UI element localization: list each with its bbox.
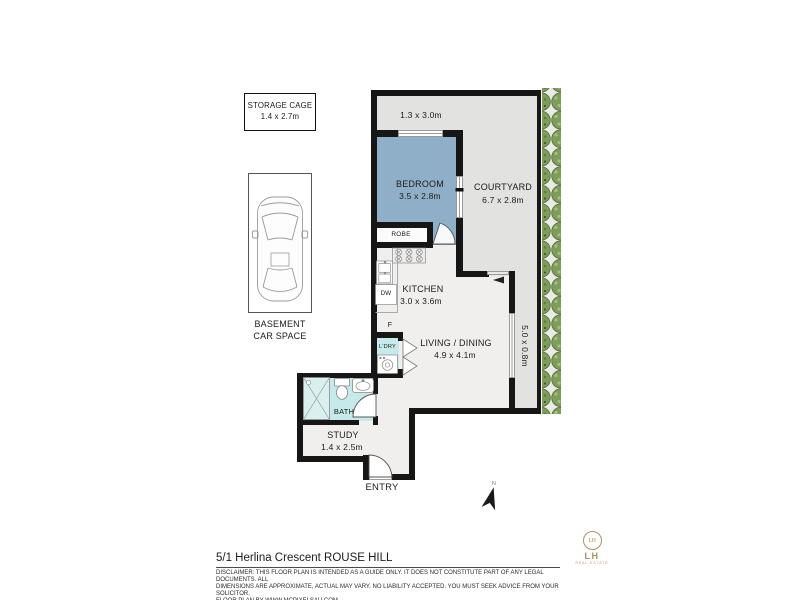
address-rule xyxy=(216,567,560,568)
logo-circle: LH xyxy=(583,531,602,550)
disclaimer-line1: DISCLAIMER: THIS FLOOR PLAN IS INTENDED … xyxy=(216,570,584,584)
storage-cage-label: STORAGE CAGE xyxy=(248,101,313,110)
window-latch-tick xyxy=(456,188,464,192)
north-arrow-icon xyxy=(482,486,501,511)
disclaimer-text: DISCLAIMER: THIS FLOOR PLAN IS INTENDED … xyxy=(216,570,584,600)
bedroom-label: BEDROOM xyxy=(396,179,444,189)
car-space-label-line1: BASEMENT xyxy=(254,319,305,329)
sliding-door-arrow-icon xyxy=(493,277,504,284)
fridge-label: F xyxy=(388,322,392,329)
logo-name: LH xyxy=(574,551,610,561)
sink-icon xyxy=(377,261,393,284)
entry-label: ENTRY xyxy=(365,482,398,493)
agency-logo: LH LH REAL ESTATE xyxy=(574,531,610,565)
storage-cage-dims: 1.4 x 2.7m xyxy=(261,112,299,121)
laundry-bifold-doors xyxy=(403,339,417,375)
study-dims: 1.4 x 2.5m xyxy=(321,442,363,452)
basin-icon xyxy=(353,379,374,393)
living-dims: 4.9 x 4.1m xyxy=(434,350,476,360)
washing-machine-icon xyxy=(378,355,398,374)
car-space-label-line2: CAR SPACE xyxy=(253,331,306,341)
top-area-dims: 1.3 x 3.0m xyxy=(400,110,442,120)
bath-door-arc xyxy=(353,394,376,417)
hedge-strip xyxy=(542,88,561,414)
disclaimer-line2: DIMENSIONS ARE APPROXIMATE, ACTUAL MAY V… xyxy=(216,584,584,598)
dishwasher-label: DW xyxy=(381,290,392,297)
shower-icon xyxy=(304,378,330,420)
entry-door-arc xyxy=(369,455,392,477)
courtyard-label: COURTYARD xyxy=(474,182,532,192)
toilet-icon xyxy=(335,379,350,400)
courtyard-dims: 6.7 x 2.8m xyxy=(482,195,524,205)
north-label: N xyxy=(492,481,496,487)
study-label: STUDY xyxy=(327,430,359,440)
address-title: 5/1 Herlina Crescent ROUSE HILL xyxy=(216,552,392,564)
bath-label: BATH xyxy=(334,407,354,416)
side-area-dims: 5.0 x 0.8m xyxy=(520,325,530,367)
kitchen-dims: 3.0 x 3.6m xyxy=(400,296,442,306)
robe-label: ROBE xyxy=(391,231,410,238)
bedroom-door-arc xyxy=(433,223,455,244)
car-space-box xyxy=(248,173,312,313)
logo-monogram: LH xyxy=(589,538,596,544)
laundry-label: L'DRY xyxy=(379,344,396,350)
kitchen-label: KITCHEN xyxy=(403,284,444,294)
bedroom-dims: 3.5 x 2.8m xyxy=(399,191,441,201)
logo-tagline: REAL ESTATE xyxy=(574,561,610,565)
floor-plan-canvas: STORAGE CAGE 1.4 x 2.7m BASEMENT CAR SPA… xyxy=(0,0,800,600)
living-label: LIVING / DINING xyxy=(420,338,492,348)
